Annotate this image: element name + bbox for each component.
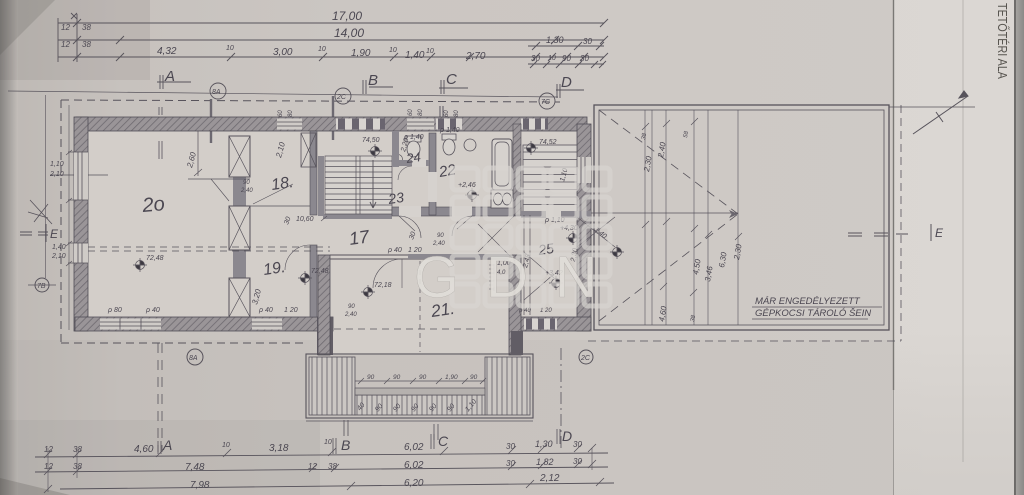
svg-text:14,00: 14,00	[334, 26, 364, 40]
svg-text:38: 38	[328, 462, 337, 471]
svg-text:D: D	[562, 428, 572, 444]
svg-text:C: C	[446, 71, 457, 88]
svg-text:17,00: 17,00	[332, 9, 362, 23]
svg-text:30: 30	[531, 54, 540, 63]
svg-text:6,20: 6,20	[404, 478, 424, 489]
svg-text:12: 12	[308, 462, 317, 471]
svg-text:6,02: 6,02	[404, 460, 424, 471]
svg-text:72,48: 72,48	[146, 255, 164, 262]
svg-text:90: 90	[348, 304, 355, 310]
svg-text:30: 30	[583, 37, 592, 46]
svg-text:ρ 40: ρ 40	[258, 307, 273, 314]
svg-text:30: 30	[573, 440, 582, 449]
svg-text:B: B	[341, 437, 350, 453]
svg-text:10: 10	[222, 442, 230, 449]
svg-text:60: 60	[408, 109, 414, 116]
svg-text:E: E	[50, 227, 59, 241]
svg-text:30: 30	[580, 54, 589, 63]
svg-text:38: 38	[82, 23, 91, 32]
svg-text:60: 60	[278, 110, 284, 117]
svg-text:7,48: 7,48	[185, 462, 205, 473]
svg-text:80: 80	[454, 110, 460, 117]
svg-text:8A: 8A	[189, 355, 198, 362]
svg-text:74,52: 74,52	[539, 139, 557, 146]
svg-text:2,40: 2,40	[240, 188, 253, 194]
svg-text:18.: 18.	[270, 174, 294, 194]
svg-text:80: 80	[418, 109, 424, 116]
svg-text:MÁR ENGEDÉLYEZETT: MÁR ENGEDÉLYEZETT	[755, 296, 861, 307]
svg-text:72,48: 72,48	[311, 268, 329, 275]
svg-text:2C: 2C	[580, 355, 591, 362]
svg-text:90: 90	[437, 233, 444, 239]
svg-text:TETŐTÉRI ALA: TETŐTÉRI ALA	[995, 3, 1010, 79]
svg-text:60: 60	[444, 110, 450, 117]
svg-text:B: B	[368, 72, 378, 89]
svg-text:74,50: 74,50	[362, 137, 380, 144]
svg-text:17: 17	[348, 226, 372, 249]
svg-text:80: 80	[288, 110, 294, 117]
svg-text:12: 12	[44, 462, 53, 471]
svg-text:3,18: 3,18	[269, 443, 289, 454]
svg-text:1,30: 1,30	[535, 439, 553, 449]
svg-text:GDN: GDN	[414, 245, 624, 310]
svg-text:2o: 2o	[141, 193, 166, 217]
svg-text:2,12: 2,12	[539, 473, 560, 484]
svg-text:10: 10	[389, 47, 397, 54]
svg-text:90: 90	[367, 374, 375, 381]
svg-text:30: 30	[506, 442, 515, 451]
svg-text:38: 38	[82, 40, 91, 49]
svg-text:90: 90	[470, 374, 478, 381]
svg-text:7C: 7C	[541, 99, 551, 106]
svg-text:GÉPKOCSI TÁROLÓ ŠEIN: GÉPKOCSI TÁROLÓ ŠEIN	[755, 308, 871, 319]
svg-text:4,60: 4,60	[134, 444, 154, 455]
svg-text:2,10: 2,10	[49, 171, 64, 178]
svg-text:23: 23	[386, 189, 405, 207]
svg-text:C: C	[438, 433, 449, 449]
svg-text:1,40: 1,40	[405, 50, 425, 61]
svg-text:2C: 2C	[336, 94, 347, 101]
svg-text:19.: 19.	[262, 259, 286, 279]
svg-text:38: 38	[73, 445, 82, 454]
svg-text:3,00: 3,00	[273, 47, 293, 58]
svg-text:12: 12	[61, 40, 70, 49]
svg-text:1,10: 1,10	[50, 161, 64, 168]
svg-text:1,90: 1,90	[445, 374, 458, 381]
svg-text:2,10: 2,10	[51, 253, 66, 260]
svg-text:2,70: 2,70	[465, 51, 486, 62]
svg-text:10: 10	[318, 46, 326, 53]
svg-text:ρ 40: ρ 40	[387, 247, 402, 254]
svg-text:10: 10	[324, 439, 332, 446]
svg-text:10: 10	[226, 45, 234, 52]
svg-text:1 20: 1 20	[284, 307, 298, 314]
svg-text:90: 90	[393, 374, 401, 381]
svg-text:ρ 1,40: ρ 1,40	[439, 127, 460, 134]
svg-text:D: D	[561, 74, 572, 91]
svg-text:72,18: 72,18	[374, 282, 392, 289]
svg-text:90: 90	[419, 374, 427, 381]
svg-text:A: A	[162, 437, 172, 453]
svg-text:1,40: 1,40	[52, 244, 66, 251]
svg-text:30: 30	[506, 459, 515, 468]
svg-text:8A: 8A	[212, 89, 221, 96]
svg-text:10,60: 10,60	[296, 216, 314, 223]
svg-text:E: E	[935, 226, 944, 240]
svg-text:12: 12	[61, 23, 70, 32]
svg-text:90: 90	[243, 180, 250, 186]
svg-text:6,02: 6,02	[404, 442, 424, 453]
svg-text:ρ 1,40: ρ 1,40	[403, 134, 424, 141]
svg-text:10: 10	[426, 48, 434, 55]
svg-text:2,40: 2,40	[344, 312, 357, 318]
svg-text:1,82: 1,82	[536, 457, 554, 467]
svg-text:12: 12	[44, 445, 53, 454]
svg-text:ρ 80: ρ 80	[107, 307, 122, 314]
svg-text:1,90: 1,90	[351, 48, 371, 59]
svg-text:7B: 7B	[37, 283, 46, 290]
svg-text:1,30: 1,30	[546, 35, 564, 45]
svg-text:30: 30	[573, 457, 582, 466]
svg-text:7,98: 7,98	[190, 480, 210, 491]
svg-text:10: 10	[548, 55, 556, 62]
svg-text:4,32: 4,32	[157, 46, 177, 57]
svg-text:38: 38	[73, 462, 82, 471]
svg-text:90: 90	[562, 54, 571, 63]
svg-text:ρ 40: ρ 40	[145, 307, 160, 314]
